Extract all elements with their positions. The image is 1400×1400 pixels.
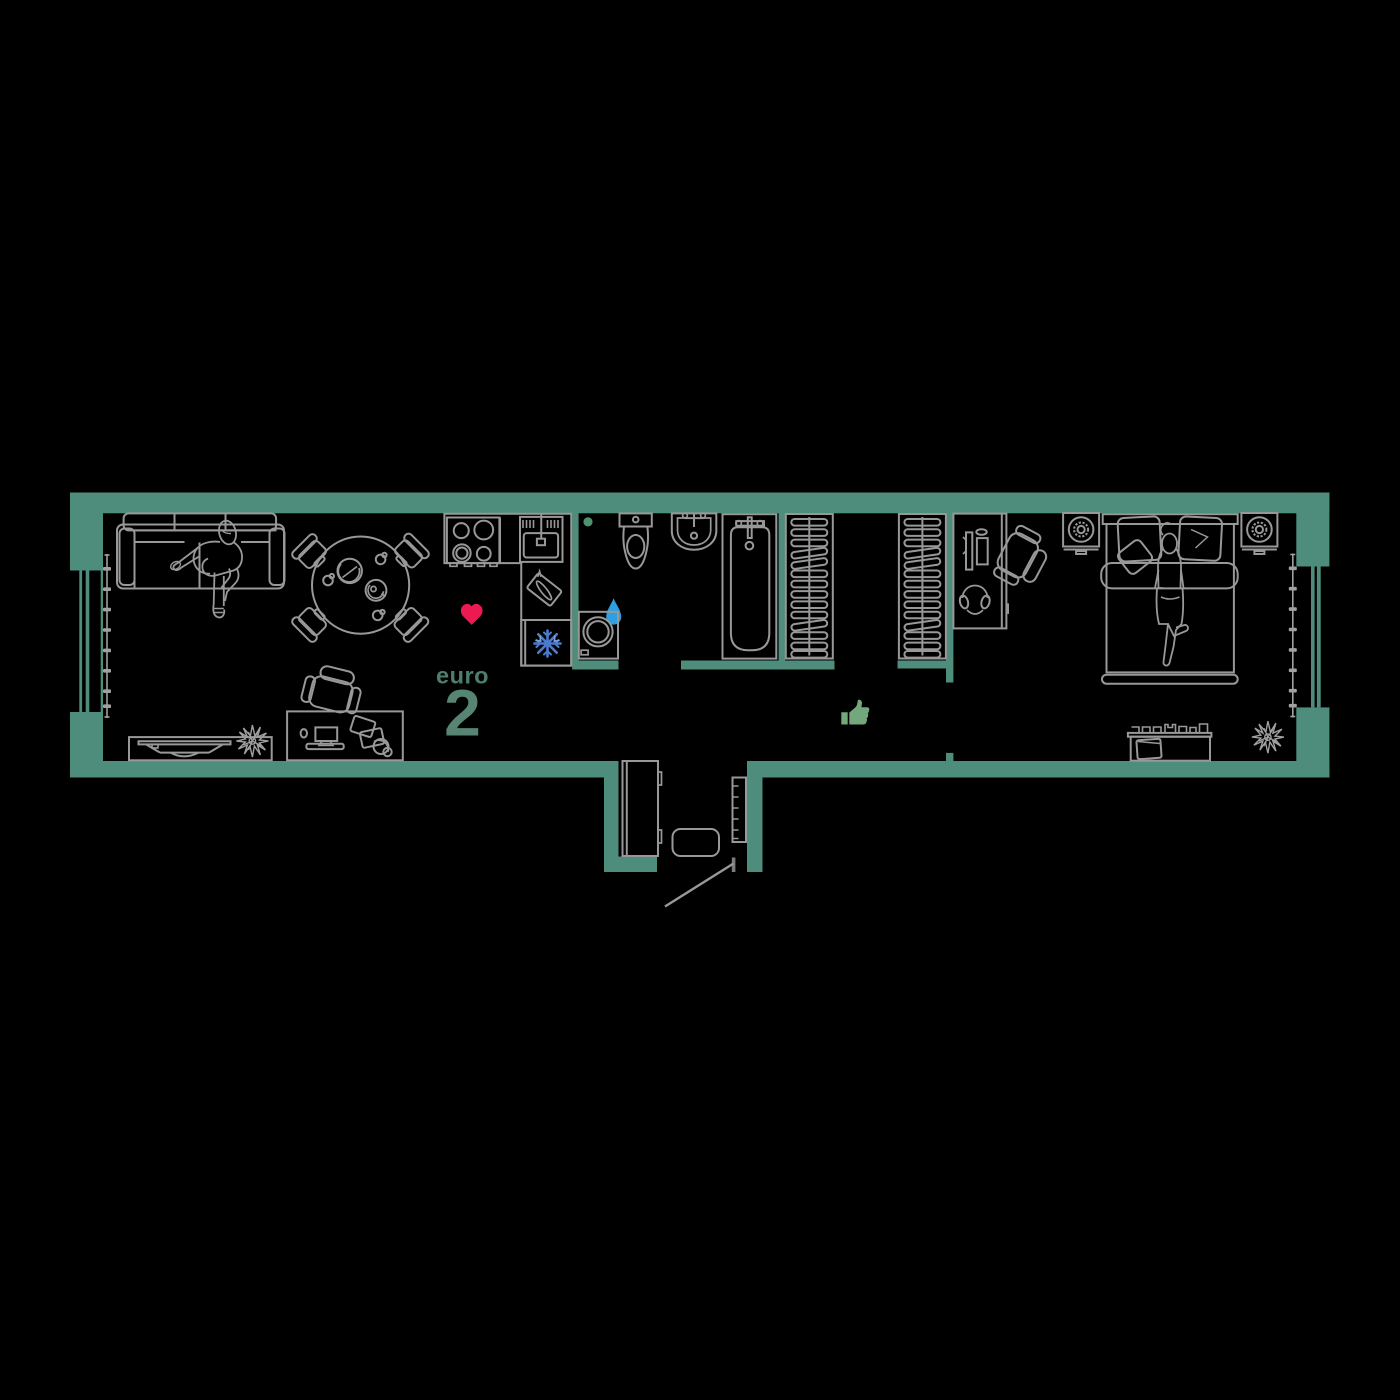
svg-text:2: 2 [444,676,481,750]
